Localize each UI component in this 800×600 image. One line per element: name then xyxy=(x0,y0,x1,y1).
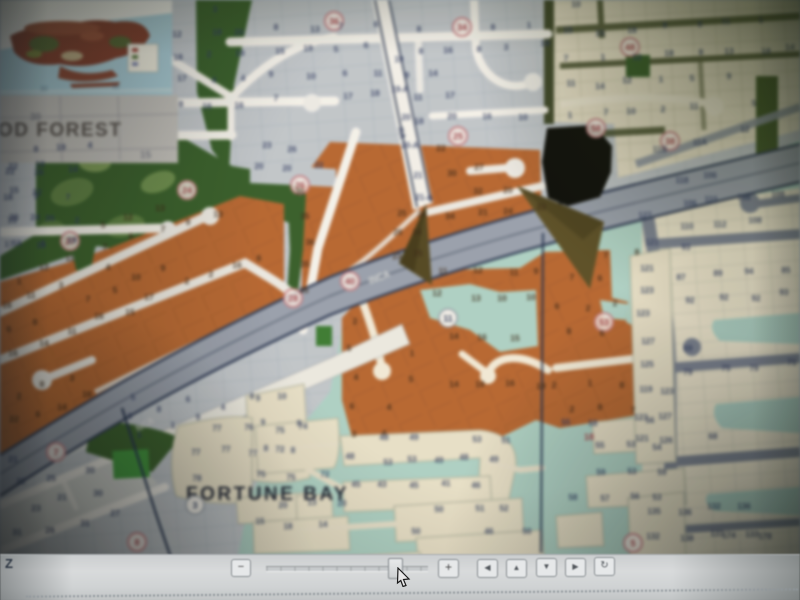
svg-text:5: 5 xyxy=(759,15,764,25)
svg-text:48: 48 xyxy=(380,433,389,442)
svg-text:30: 30 xyxy=(447,168,457,178)
svg-text:3: 3 xyxy=(137,431,142,440)
svg-text:45: 45 xyxy=(410,481,419,490)
svg-text:119: 119 xyxy=(640,385,653,394)
svg-text:93: 93 xyxy=(682,243,691,252)
svg-text:8: 8 xyxy=(34,144,39,154)
svg-text:1: 1 xyxy=(171,421,176,430)
svg-text:3: 3 xyxy=(213,4,218,14)
svg-text:133: 133 xyxy=(745,530,759,539)
svg-text:14: 14 xyxy=(595,81,605,91)
svg-text:106: 106 xyxy=(683,199,697,208)
svg-text:4: 4 xyxy=(212,75,217,85)
svg-text:53: 53 xyxy=(653,493,662,502)
svg-text:18: 18 xyxy=(35,159,45,169)
svg-text:49: 49 xyxy=(435,456,444,465)
svg-text:35: 35 xyxy=(301,212,310,221)
svg-text:41: 41 xyxy=(442,479,451,488)
svg-text:53: 53 xyxy=(384,458,393,467)
svg-text:FORTUNE BAY: FORTUNE BAY xyxy=(186,484,349,505)
svg-text:1: 1 xyxy=(410,348,415,358)
svg-text:11: 11 xyxy=(414,92,423,102)
svg-text:8: 8 xyxy=(291,446,296,455)
svg-text:30: 30 xyxy=(40,86,48,93)
svg-text:2: 2 xyxy=(552,380,557,390)
svg-text:8: 8 xyxy=(40,379,45,389)
svg-text:9: 9 xyxy=(261,418,266,427)
svg-text:25: 25 xyxy=(453,132,463,142)
svg-text:7: 7 xyxy=(66,192,71,202)
svg-text:33: 33 xyxy=(536,202,546,212)
svg-text:2: 2 xyxy=(661,104,666,114)
svg-text:49: 49 xyxy=(490,455,499,464)
svg-text:20-A: 20-A xyxy=(401,141,419,150)
svg-text:77: 77 xyxy=(213,424,222,433)
svg-text:15: 15 xyxy=(140,150,152,161)
svg-text:6: 6 xyxy=(343,68,348,78)
svg-text:1: 1 xyxy=(588,378,593,388)
svg-text:6: 6 xyxy=(374,19,379,29)
svg-text:22: 22 xyxy=(436,143,446,153)
svg-text:25: 25 xyxy=(414,249,423,258)
svg-text:10: 10 xyxy=(131,272,141,282)
svg-text:4: 4 xyxy=(106,262,111,272)
svg-text:4: 4 xyxy=(387,402,392,412)
svg-text:89: 89 xyxy=(714,269,723,278)
svg-text:9: 9 xyxy=(727,71,732,81)
svg-text:4: 4 xyxy=(221,403,226,412)
svg-text:7: 7 xyxy=(103,242,108,252)
svg-text:11: 11 xyxy=(690,101,699,111)
svg-text:22: 22 xyxy=(16,476,26,486)
svg-text:31: 31 xyxy=(12,527,22,537)
svg-text:31: 31 xyxy=(80,518,90,528)
svg-text:19: 19 xyxy=(235,48,245,58)
svg-text:59: 59 xyxy=(597,468,606,477)
svg-text:8: 8 xyxy=(274,22,279,32)
svg-text:8: 8 xyxy=(417,24,422,34)
svg-text:12: 12 xyxy=(473,265,483,275)
svg-text:78: 78 xyxy=(193,474,202,483)
svg-text:3: 3 xyxy=(504,42,509,52)
svg-text:6: 6 xyxy=(350,401,355,411)
svg-text:9: 9 xyxy=(405,70,410,80)
svg-text:5: 5 xyxy=(630,539,635,549)
svg-text:21: 21 xyxy=(478,207,488,217)
svg-text:7: 7 xyxy=(564,53,569,63)
svg-text:16: 16 xyxy=(94,311,104,321)
svg-text:26: 26 xyxy=(45,213,55,223)
svg-text:16: 16 xyxy=(202,101,212,111)
svg-text:5: 5 xyxy=(334,44,339,54)
svg-text:93: 93 xyxy=(780,288,789,297)
svg-text:125: 125 xyxy=(640,360,654,369)
svg-text:12: 12 xyxy=(432,288,442,298)
svg-text:7: 7 xyxy=(274,93,279,103)
svg-text:5: 5 xyxy=(347,343,352,353)
svg-text:16: 16 xyxy=(232,260,242,270)
svg-text:135: 135 xyxy=(647,507,661,516)
svg-text:10: 10 xyxy=(497,293,507,303)
svg-text:11: 11 xyxy=(374,68,383,78)
svg-text:14: 14 xyxy=(57,402,67,412)
svg-text:123: 123 xyxy=(634,413,648,422)
svg-text:8: 8 xyxy=(419,46,424,56)
svg-text:13: 13 xyxy=(213,209,223,219)
svg-text:21: 21 xyxy=(8,454,18,464)
svg-text:20: 20 xyxy=(255,162,264,171)
svg-text:19: 19 xyxy=(67,235,77,245)
svg-text:10: 10 xyxy=(306,71,316,81)
svg-text:15: 15 xyxy=(275,46,285,56)
svg-text:23: 23 xyxy=(31,503,41,513)
svg-text:20: 20 xyxy=(338,499,347,508)
svg-text:9: 9 xyxy=(269,69,274,79)
svg-text:59: 59 xyxy=(658,468,667,477)
svg-text:21-A: 21-A xyxy=(415,193,433,202)
svg-text:5: 5 xyxy=(131,393,136,402)
svg-text:16: 16 xyxy=(234,100,244,110)
svg-text:10: 10 xyxy=(571,0,581,9)
svg-text:14: 14 xyxy=(68,164,78,174)
svg-text:48: 48 xyxy=(625,43,635,53)
svg-text:18: 18 xyxy=(627,25,637,35)
svg-text:8: 8 xyxy=(157,405,162,414)
svg-text:23: 23 xyxy=(263,141,272,150)
svg-text:5: 5 xyxy=(690,73,695,83)
svg-text:2: 2 xyxy=(570,404,575,414)
svg-text:4: 4 xyxy=(354,372,359,382)
svg-text:30: 30 xyxy=(85,465,95,475)
svg-text:27: 27 xyxy=(474,162,484,172)
svg-text:12: 12 xyxy=(622,75,632,85)
svg-text:21: 21 xyxy=(414,171,423,180)
svg-text:178: 178 xyxy=(758,532,772,541)
svg-text:8: 8 xyxy=(491,22,496,32)
svg-text:1: 1 xyxy=(659,74,664,84)
svg-text:26: 26 xyxy=(288,145,297,154)
svg-text:18: 18 xyxy=(370,88,380,98)
svg-text:13: 13 xyxy=(310,24,320,34)
svg-text:13: 13 xyxy=(724,46,734,56)
svg-text:69: 69 xyxy=(684,344,693,353)
svg-text:108: 108 xyxy=(748,216,762,225)
svg-text:36: 36 xyxy=(329,17,339,27)
svg-text:16: 16 xyxy=(505,378,515,388)
svg-text:8: 8 xyxy=(698,19,703,29)
svg-text:17: 17 xyxy=(144,292,154,302)
svg-text:4: 4 xyxy=(88,140,93,150)
svg-text:108: 108 xyxy=(737,193,751,202)
svg-text:9: 9 xyxy=(196,413,201,422)
svg-text:11: 11 xyxy=(68,326,77,336)
svg-text:7: 7 xyxy=(570,272,575,282)
svg-text:11: 11 xyxy=(27,290,36,300)
svg-text:6: 6 xyxy=(364,40,369,50)
svg-text:75: 75 xyxy=(287,473,296,482)
svg-text:5: 5 xyxy=(409,374,414,384)
svg-text:5: 5 xyxy=(752,98,757,108)
svg-text:12: 12 xyxy=(172,29,182,39)
svg-text:2: 2 xyxy=(209,269,214,279)
svg-text:19: 19 xyxy=(56,142,66,152)
svg-text:11: 11 xyxy=(510,267,519,277)
svg-text:2: 2 xyxy=(207,49,212,59)
svg-text:71: 71 xyxy=(788,358,797,367)
svg-text:15: 15 xyxy=(510,333,520,343)
svg-text:35: 35 xyxy=(300,286,309,295)
svg-text:8: 8 xyxy=(620,380,625,390)
svg-text:53: 53 xyxy=(599,318,609,328)
svg-text:16: 16 xyxy=(477,332,487,342)
svg-text:19: 19 xyxy=(395,55,404,64)
svg-text:58: 58 xyxy=(569,493,578,502)
svg-text:10: 10 xyxy=(626,106,636,116)
svg-text:15: 15 xyxy=(125,307,135,317)
svg-text:136: 136 xyxy=(737,502,751,511)
svg-text:8: 8 xyxy=(699,47,704,57)
svg-text:11: 11 xyxy=(439,266,448,276)
svg-text:8: 8 xyxy=(663,20,668,30)
svg-text:87: 87 xyxy=(677,273,686,282)
svg-text:57: 57 xyxy=(601,494,610,503)
svg-text:9: 9 xyxy=(534,266,539,276)
svg-text:56: 56 xyxy=(631,492,640,501)
svg-text:34: 34 xyxy=(457,23,467,33)
svg-text:3: 3 xyxy=(352,429,357,439)
svg-text:55: 55 xyxy=(562,418,571,427)
svg-text:10: 10 xyxy=(518,112,528,122)
svg-text:2: 2 xyxy=(75,215,80,225)
svg-text:14: 14 xyxy=(319,520,328,529)
svg-text:24: 24 xyxy=(182,186,192,196)
svg-text:18: 18 xyxy=(414,116,424,126)
svg-text:22: 22 xyxy=(315,161,324,170)
svg-text:92: 92 xyxy=(720,293,729,302)
svg-text:123: 123 xyxy=(640,286,654,295)
svg-text:77: 77 xyxy=(222,445,231,454)
svg-text:14: 14 xyxy=(449,379,459,389)
svg-text:17: 17 xyxy=(445,90,455,100)
svg-text:11B: 11B xyxy=(653,145,667,154)
svg-text:3: 3 xyxy=(59,280,64,290)
svg-text:92: 92 xyxy=(686,296,695,305)
svg-text:2: 2 xyxy=(586,303,591,313)
svg-text:20: 20 xyxy=(447,111,457,121)
svg-text:9: 9 xyxy=(128,412,133,421)
svg-text:7: 7 xyxy=(604,107,609,117)
svg-text:13: 13 xyxy=(308,498,317,507)
svg-text:75: 75 xyxy=(257,470,266,479)
svg-text:27: 27 xyxy=(110,508,120,518)
svg-text:5: 5 xyxy=(113,285,118,295)
svg-text:55: 55 xyxy=(596,441,605,450)
svg-text:53: 53 xyxy=(473,435,482,444)
svg-text:3: 3 xyxy=(70,373,75,383)
svg-text:15: 15 xyxy=(563,25,573,35)
svg-text:2: 2 xyxy=(353,316,358,326)
svg-text:174: 174 xyxy=(722,531,736,540)
svg-text:30: 30 xyxy=(93,488,103,498)
svg-text:13: 13 xyxy=(155,203,165,213)
svg-text:75: 75 xyxy=(276,426,285,435)
svg-text:1: 1 xyxy=(568,110,573,120)
svg-text:24: 24 xyxy=(503,206,513,216)
svg-text:75: 75 xyxy=(722,364,731,373)
svg-text:94: 94 xyxy=(745,267,754,276)
svg-text:76: 76 xyxy=(245,423,254,432)
svg-text:8: 8 xyxy=(134,538,139,548)
svg-text:14: 14 xyxy=(785,42,795,52)
svg-text:15: 15 xyxy=(595,28,605,38)
svg-text:79: 79 xyxy=(750,364,759,373)
svg-text:4: 4 xyxy=(241,73,246,83)
svg-text:1: 1 xyxy=(601,52,606,62)
svg-text:3: 3 xyxy=(192,501,197,511)
svg-text:18: 18 xyxy=(36,240,46,250)
svg-text:14: 14 xyxy=(39,338,49,348)
svg-text:72: 72 xyxy=(276,445,285,454)
svg-text:28: 28 xyxy=(288,294,298,304)
svg-text:127: 127 xyxy=(641,337,655,346)
svg-text:126: 126 xyxy=(659,436,673,445)
svg-text:6: 6 xyxy=(186,395,191,404)
svg-text:25: 25 xyxy=(398,209,407,218)
svg-text:121: 121 xyxy=(640,264,654,273)
svg-text:48: 48 xyxy=(460,453,469,462)
svg-text:12: 12 xyxy=(123,212,133,222)
svg-text:7: 7 xyxy=(86,294,91,304)
svg-text:121: 121 xyxy=(645,238,659,247)
svg-text:14: 14 xyxy=(428,68,438,78)
svg-text:20: 20 xyxy=(234,27,244,37)
svg-text:8: 8 xyxy=(33,317,38,327)
svg-text:8: 8 xyxy=(297,419,302,428)
svg-text:132: 132 xyxy=(646,532,660,541)
svg-text:18: 18 xyxy=(540,38,550,48)
svg-text:46: 46 xyxy=(485,527,494,536)
svg-text:26: 26 xyxy=(45,525,55,535)
svg-text:77: 77 xyxy=(249,449,258,458)
svg-text:8: 8 xyxy=(179,99,184,109)
svg-text:10: 10 xyxy=(526,292,536,302)
svg-text:1: 1 xyxy=(17,276,22,286)
svg-text:14: 14 xyxy=(449,331,459,341)
svg-text:20: 20 xyxy=(283,164,292,173)
svg-text:6: 6 xyxy=(7,324,12,334)
svg-text:18: 18 xyxy=(664,48,674,58)
svg-text:58: 58 xyxy=(589,419,598,428)
svg-text:48: 48 xyxy=(346,452,355,461)
svg-text:6: 6 xyxy=(600,328,605,338)
svg-text:58: 58 xyxy=(591,124,601,134)
svg-text:118: 118 xyxy=(676,176,689,185)
svg-text:2: 2 xyxy=(613,298,618,308)
svg-text:6: 6 xyxy=(598,273,603,283)
svg-text:6: 6 xyxy=(129,231,134,241)
svg-text:1: 1 xyxy=(527,20,532,30)
svg-text:121: 121 xyxy=(635,434,649,443)
svg-text:79: 79 xyxy=(684,368,693,377)
svg-text:136: 136 xyxy=(678,508,692,517)
svg-text:49: 49 xyxy=(410,433,419,442)
svg-text:51: 51 xyxy=(476,504,485,513)
svg-text:35: 35 xyxy=(301,260,310,269)
svg-text:12: 12 xyxy=(39,262,49,272)
svg-text:6: 6 xyxy=(36,409,41,419)
svg-text:127: 127 xyxy=(658,412,672,421)
svg-text:110: 110 xyxy=(681,222,694,231)
svg-text:16: 16 xyxy=(8,348,18,358)
svg-text:10: 10 xyxy=(278,392,287,401)
svg-text:19: 19 xyxy=(303,43,313,53)
svg-text:2: 2 xyxy=(17,391,22,401)
svg-text:51: 51 xyxy=(502,436,511,445)
svg-text:18: 18 xyxy=(284,522,293,531)
svg-text:6: 6 xyxy=(555,301,560,311)
svg-text:12: 12 xyxy=(741,125,750,134)
svg-text:8: 8 xyxy=(264,444,269,453)
svg-text:5: 5 xyxy=(101,220,106,230)
svg-text:15: 15 xyxy=(256,517,265,526)
svg-text:23: 23 xyxy=(393,252,402,261)
svg-text:19: 19 xyxy=(536,381,546,391)
svg-text:8: 8 xyxy=(477,44,482,54)
svg-text:17: 17 xyxy=(177,73,187,83)
svg-text:13: 13 xyxy=(471,293,481,303)
svg-text:7: 7 xyxy=(161,224,166,234)
svg-text:30: 30 xyxy=(296,188,305,197)
svg-text:24: 24 xyxy=(413,228,422,237)
svg-text:OD FOREST: OD FOREST xyxy=(0,120,122,141)
svg-text:2: 2 xyxy=(185,276,190,286)
svg-text:11: 11 xyxy=(722,16,731,26)
svg-text:18: 18 xyxy=(761,46,771,56)
svg-text:22: 22 xyxy=(9,414,19,424)
svg-text:15: 15 xyxy=(9,185,19,195)
svg-text:18: 18 xyxy=(173,52,183,62)
svg-text:85: 85 xyxy=(782,266,791,275)
svg-text:20: 20 xyxy=(503,185,513,195)
svg-text:53: 53 xyxy=(628,467,637,476)
svg-text:11: 11 xyxy=(443,314,453,324)
svg-text:19: 19 xyxy=(7,215,17,225)
svg-text:16: 16 xyxy=(12,238,22,248)
svg-text:17: 17 xyxy=(343,91,353,101)
svg-text:52: 52 xyxy=(500,504,509,513)
svg-text:9: 9 xyxy=(161,263,166,273)
svg-text:127: 127 xyxy=(638,211,652,220)
svg-text:22: 22 xyxy=(32,187,42,197)
svg-text:138: 138 xyxy=(680,534,694,543)
svg-text:7: 7 xyxy=(339,21,344,31)
svg-text:8: 8 xyxy=(567,326,572,336)
svg-text:108: 108 xyxy=(771,190,785,199)
svg-text:22: 22 xyxy=(8,161,18,171)
svg-text:50: 50 xyxy=(523,527,532,536)
svg-text:11: 11 xyxy=(567,78,576,88)
svg-text:20: 20 xyxy=(402,113,411,122)
svg-text:50: 50 xyxy=(435,505,444,514)
svg-text:12: 12 xyxy=(632,52,642,62)
svg-text:43: 43 xyxy=(378,480,387,489)
svg-text:46: 46 xyxy=(472,481,481,490)
svg-text:53: 53 xyxy=(408,455,417,464)
svg-text:72: 72 xyxy=(321,470,330,479)
svg-text:9: 9 xyxy=(186,217,191,227)
svg-text:16: 16 xyxy=(82,389,92,399)
svg-text:30: 30 xyxy=(112,84,120,91)
